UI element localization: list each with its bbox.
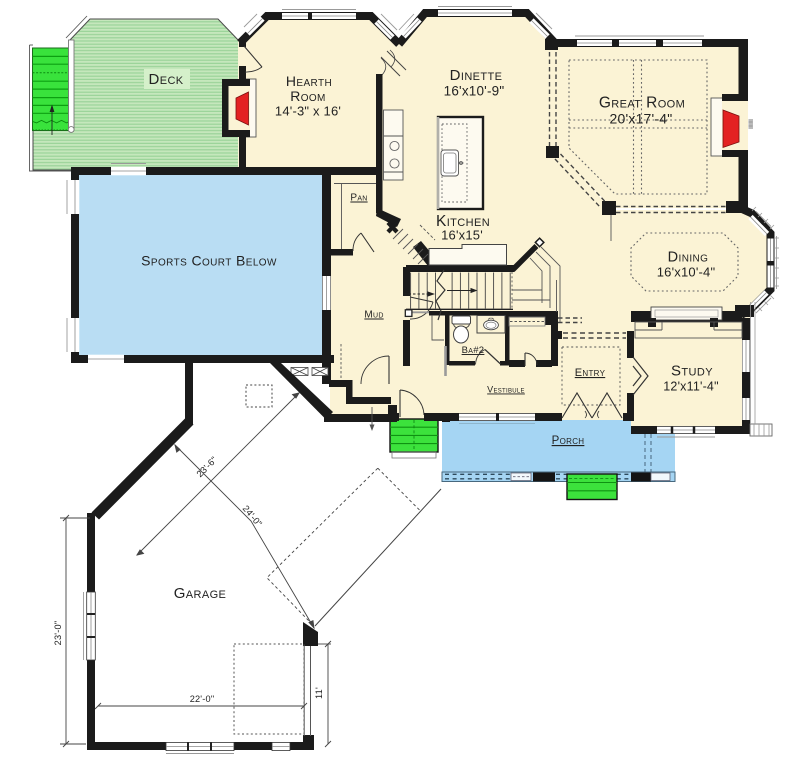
svg-text:16'x15': 16'x15' — [441, 228, 483, 243]
svg-text:Dining: Dining — [668, 250, 709, 266]
svg-text:12'x11'-4": 12'x11'-4" — [663, 380, 718, 394]
svg-text:Deck: Deck — [148, 71, 183, 88]
svg-text:Vestibule: Vestibule — [487, 385, 525, 395]
svg-text:Sports Court Below: Sports Court Below — [141, 253, 277, 269]
svg-text:Pan: Pan — [350, 193, 367, 204]
svg-text:Ba#2: Ba#2 — [462, 345, 485, 356]
svg-text:Study: Study — [671, 363, 713, 380]
svg-text:14'-3" x 16': 14'-3" x 16' — [275, 104, 341, 119]
svg-text:Porch: Porch — [552, 435, 585, 447]
svg-text:Mud: Mud — [364, 310, 383, 321]
svg-text:Great Room: Great Room — [599, 95, 685, 112]
svg-text:Entry: Entry — [575, 367, 606, 379]
svg-text:23'-0": 23'-0" — [53, 621, 63, 646]
svg-text:Garage: Garage — [174, 585, 227, 602]
svg-text:Room: Room — [290, 88, 326, 104]
svg-text:Hearth: Hearth — [286, 73, 332, 89]
svg-text:11': 11' — [314, 687, 324, 699]
svg-text:16'x10'-9": 16'x10'-9" — [444, 84, 505, 99]
svg-text:Dinette: Dinette — [450, 67, 503, 84]
svg-text:20'x17'-4": 20'x17'-4" — [610, 111, 673, 127]
svg-text:22'-0": 22'-0" — [190, 694, 215, 704]
svg-text:16'x10'-4": 16'x10'-4" — [657, 265, 716, 280]
